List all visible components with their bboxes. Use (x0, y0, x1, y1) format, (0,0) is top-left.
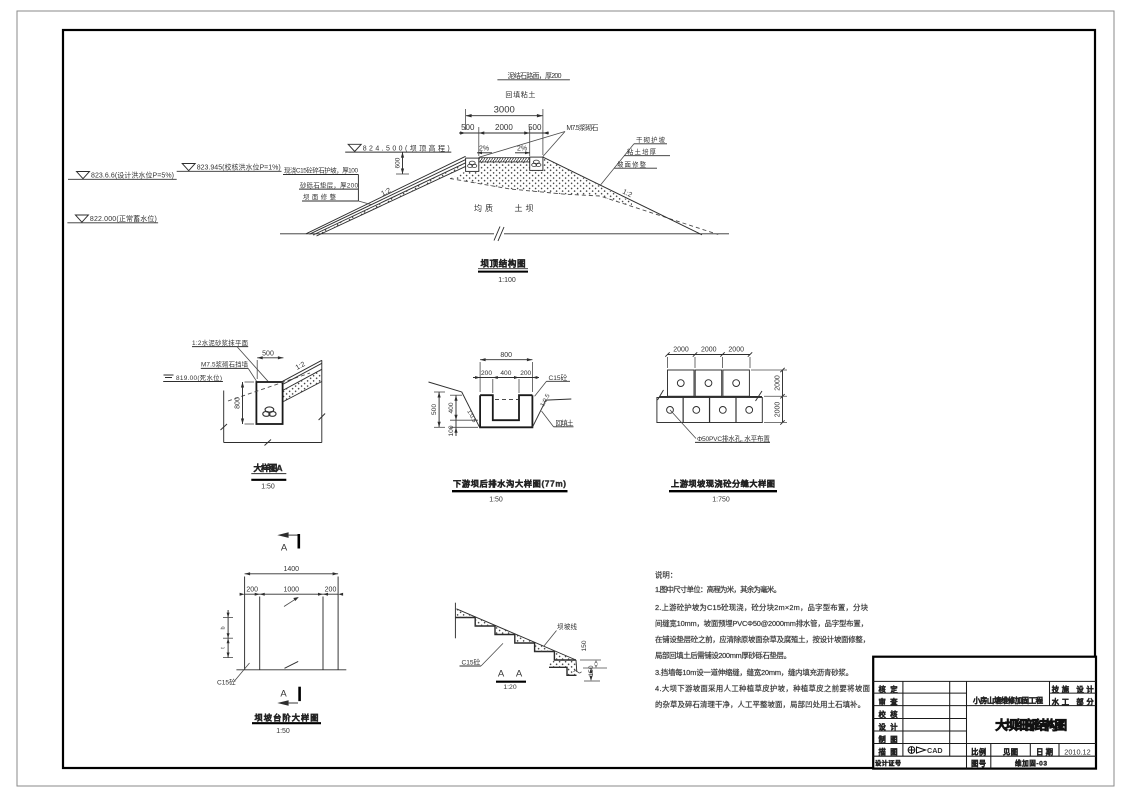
svg-text:上游坝坡现浇砼分缝大样图: 上游坝坡现浇砼分缝大样图 (671, 479, 775, 489)
svg-text:2000: 2000 (495, 123, 513, 132)
svg-text:泥结石路面，厚200: 泥结石路面，厚200 (508, 71, 562, 80)
svg-text:1.图中尺寸单位：高程为米，其余为毫米。: 1.图中尺寸单位：高程为米，其余为毫米。 (655, 585, 781, 594)
svg-text:1:50: 1:50 (489, 497, 503, 504)
svg-text:2000: 2000 (775, 402, 782, 418)
svg-text:1400: 1400 (284, 566, 300, 573)
svg-text:4.大坝下游坡面采用人工种植草皮护坡，种植草皮之前要将坡面: 4.大坝下游坡面采用人工种植草皮护坡，种植草皮之前要将坡面 (655, 684, 870, 693)
svg-text:技施 设计: 技施 设计 (1052, 685, 1095, 694)
svg-text:下游坝后排水沟大样图(77m): 下游坝后排水沟大样图(77m) (453, 479, 566, 489)
svg-text:设计证号: 设计证号 (875, 760, 901, 768)
svg-text:3.挡墙每10m设一道伸缩缝，缝宽20mm，缝内填充沥青砂浆: 3.挡墙每10m设一道伸缩缝，缝宽20mm，缝内填充沥青砂浆。 (655, 668, 853, 677)
svg-text:150: 150 (581, 640, 588, 651)
svg-text:800: 800 (235, 397, 242, 409)
svg-text:1:2水泥砂浆抹平面: 1:2水泥砂浆抹平面 (192, 338, 249, 347)
svg-text:1:50: 1:50 (261, 484, 275, 491)
svg-text:大样图A: 大样图A (254, 463, 283, 473)
svg-text:822.000(正常蓄水位): 822.000(正常蓄水位) (90, 214, 157, 223)
svg-text:说明：: 说明： (655, 571, 677, 580)
svg-text:1:20: 1:20 (503, 684, 516, 691)
svg-text:200: 200 (481, 370, 492, 377)
svg-text:2000: 2000 (775, 375, 782, 391)
svg-text:Φ50PVC排水孔, 水平布置: Φ50PVC排水孔, 水平布置 (697, 434, 770, 443)
svg-text:2.上游砼护坡为C15砼现浇，砼分块2m×2m，品字型布置，: 2.上游砼护坡为C15砼现浇，砼分块2m×2m，品字型布置，分块 (655, 603, 869, 612)
svg-text:校 核: 校 核 (879, 710, 899, 719)
svg-text:A: A (280, 689, 287, 700)
svg-text:均 质: 均 质 (474, 203, 493, 213)
svg-text:3000: 3000 (494, 105, 515, 116)
svg-text:比例: 比例 (971, 747, 986, 756)
svg-text:描 图: 描 图 (879, 747, 898, 756)
svg-text:A: A (498, 669, 505, 680)
svg-text:2010.12: 2010.12 (1064, 747, 1090, 756)
svg-text:2%: 2% (517, 146, 527, 153)
svg-text:设 计: 设 计 (879, 722, 899, 731)
svg-text:核 定: 核 定 (879, 685, 899, 694)
svg-text:800: 800 (500, 352, 512, 359)
svg-text:C15砼: C15砼 (462, 658, 481, 667)
svg-text:土 坝: 土 坝 (515, 203, 534, 213)
svg-text:400: 400 (448, 402, 455, 413)
svg-text:823.6.6(设计洪水位P=5%): 823.6.6(设计洪水位P=5%) (91, 171, 174, 180)
svg-text:2000: 2000 (701, 347, 717, 354)
svg-text:200: 200 (520, 370, 531, 377)
svg-text:小房山塘维修加固工程: 小房山塘维修加固工程 (972, 696, 1044, 705)
svg-text:500: 500 (431, 404, 438, 415)
svg-text:回填土: 回填土 (556, 418, 574, 427)
svg-text:日 期: 日 期 (1036, 747, 1053, 756)
svg-text:200: 200 (246, 586, 258, 593)
svg-text:b: b (221, 626, 227, 629)
svg-text:600: 600 (395, 157, 402, 168)
svg-text:在铺设垫层砼之前，应清除原坡面杂草及腐殖土，按设计坡面修整，: 在铺设垫层砼之前，应清除原坡面杂草及腐殖土，按设计坡面修整， (655, 635, 870, 644)
svg-text:M7.5浆砌石挡墙: M7.5浆砌石挡墙 (201, 360, 249, 369)
svg-text:A: A (281, 543, 288, 554)
svg-text:审 查: 审 查 (879, 697, 899, 706)
svg-text:1:50: 1:50 (276, 728, 290, 735)
svg-text:维加固-03: 维加固-03 (1015, 759, 1047, 768)
svg-text:M7.5浆砌石: M7.5浆砌石 (566, 123, 598, 132)
svg-text:2000: 2000 (728, 347, 744, 354)
svg-text:C15砼: C15砼 (217, 677, 236, 686)
svg-text:1:750: 1:750 (712, 497, 730, 504)
svg-text:回填粘土: 回填粘土 (505, 90, 535, 99)
svg-text:1:100: 1:100 (498, 277, 516, 284)
svg-text:100: 100 (448, 425, 455, 436)
svg-text:2%: 2% (479, 146, 489, 153)
svg-text:大坝细部结构图: 大坝细部结构图 (995, 718, 1067, 733)
svg-text:1000: 1000 (284, 586, 300, 593)
svg-text:图号: 图号 (971, 759, 986, 768)
svg-text:A: A (516, 669, 523, 680)
svg-text:400: 400 (500, 370, 511, 377)
svg-text:819.00(死水位): 819.00(死水位) (176, 373, 222, 382)
svg-text:水工 部分: 水工 部分 (1052, 697, 1095, 706)
svg-text:坡面修整: 坡面修整 (617, 159, 647, 168)
svg-text:CAD: CAD (927, 746, 943, 755)
svg-text:500: 500 (262, 350, 274, 357)
svg-text:现浇C15砼碎石护坡，厚100: 现浇C15砼碎石护坡，厚100 (284, 165, 358, 174)
svg-text:坝顶结构图: 坝顶结构图 (481, 259, 526, 269)
svg-text:500: 500 (461, 123, 475, 132)
svg-text:C15砼: C15砼 (549, 373, 568, 382)
svg-text:制 图: 制 图 (879, 735, 898, 744)
svg-text:砂砾石垫层，厚200: 砂砾石垫层，厚200 (300, 180, 358, 189)
svg-text:间缝宽10mm，坡面预埋PVCΦ50@2000mm排水管，品: 间缝宽10mm，坡面预埋PVCΦ50@2000mm排水管，品字型布置， (655, 619, 868, 628)
svg-text:150: 150 (588, 665, 595, 676)
svg-text:200: 200 (325, 586, 337, 593)
svg-text:的杂草及碎石清理干净，人工平整坡面，局部凹处用土石填补。: 的杂草及碎石清理干净，人工平整坡面，局部凹处用土石填补。 (655, 700, 865, 709)
svg-text:500: 500 (528, 123, 542, 132)
svg-text:坝面修整: 坝面修整 (303, 192, 337, 201)
svg-text:坝坡台阶大样图: 坝坡台阶大样图 (255, 713, 319, 723)
svg-text:823.945(校核洪水位P=1%): 823.945(校核洪水位P=1%) (197, 163, 281, 172)
svg-text:粘土培厚: 粘土培厚 (627, 147, 657, 156)
svg-text:局部回填土后需铺设200mm厚砂砾石垫层。: 局部回填土后需铺设200mm厚砂砾石垫层。 (655, 651, 791, 660)
svg-text:2000: 2000 (673, 347, 689, 354)
svg-text:见图: 见图 (1003, 747, 1018, 756)
svg-text:坝坡线: 坝坡线 (557, 622, 577, 631)
svg-text:干砌护坡: 干砌护坡 (636, 135, 666, 144)
